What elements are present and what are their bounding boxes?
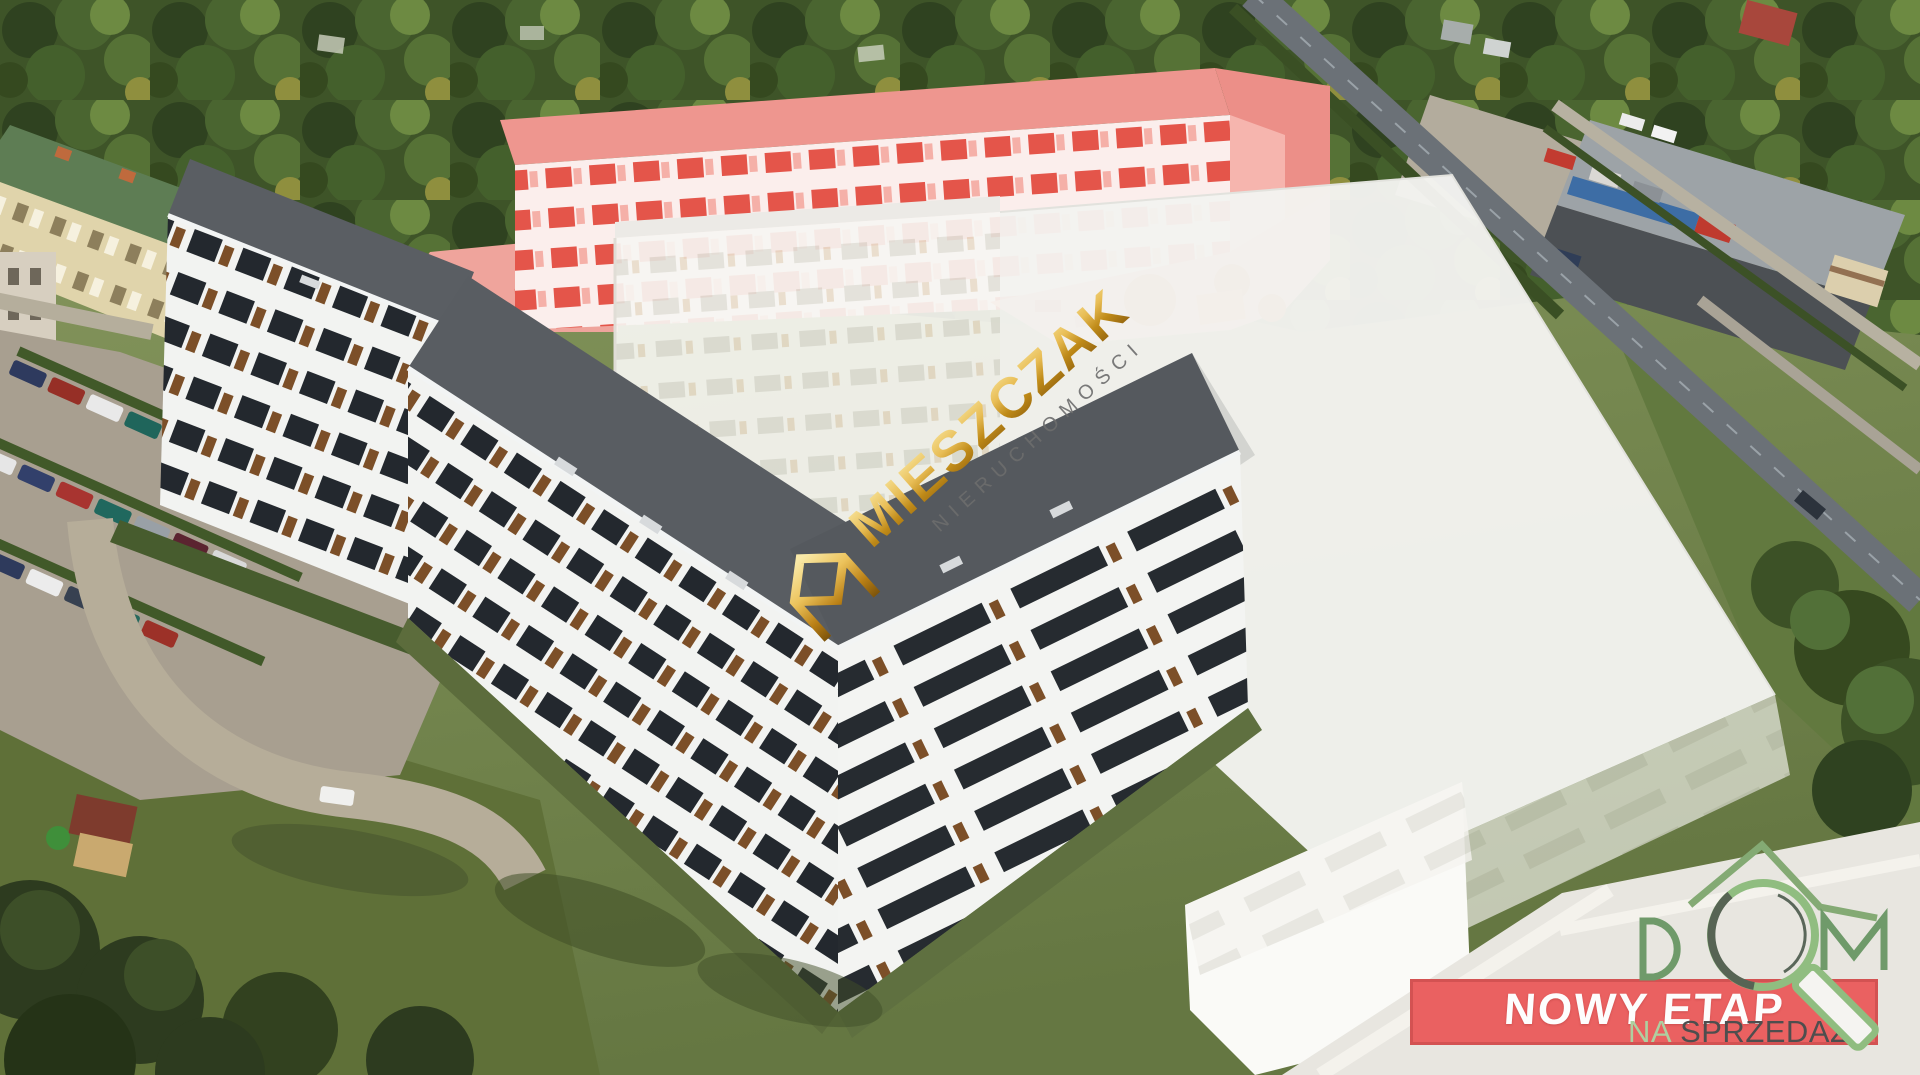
aerial-render: MIESZCZAK NIERUCHOMOŚCI NOWY ETAP NASPRZ… [0, 0, 1920, 1075]
tagline-main: SPRZEDAŻ [1680, 1014, 1849, 1049]
bin [46, 826, 70, 850]
tagline-prefix: NA [1628, 1014, 1672, 1049]
sale-tagline: NASPRZEDAŻ [1628, 1014, 1849, 1050]
landscape-scene [0, 0, 1920, 1075]
